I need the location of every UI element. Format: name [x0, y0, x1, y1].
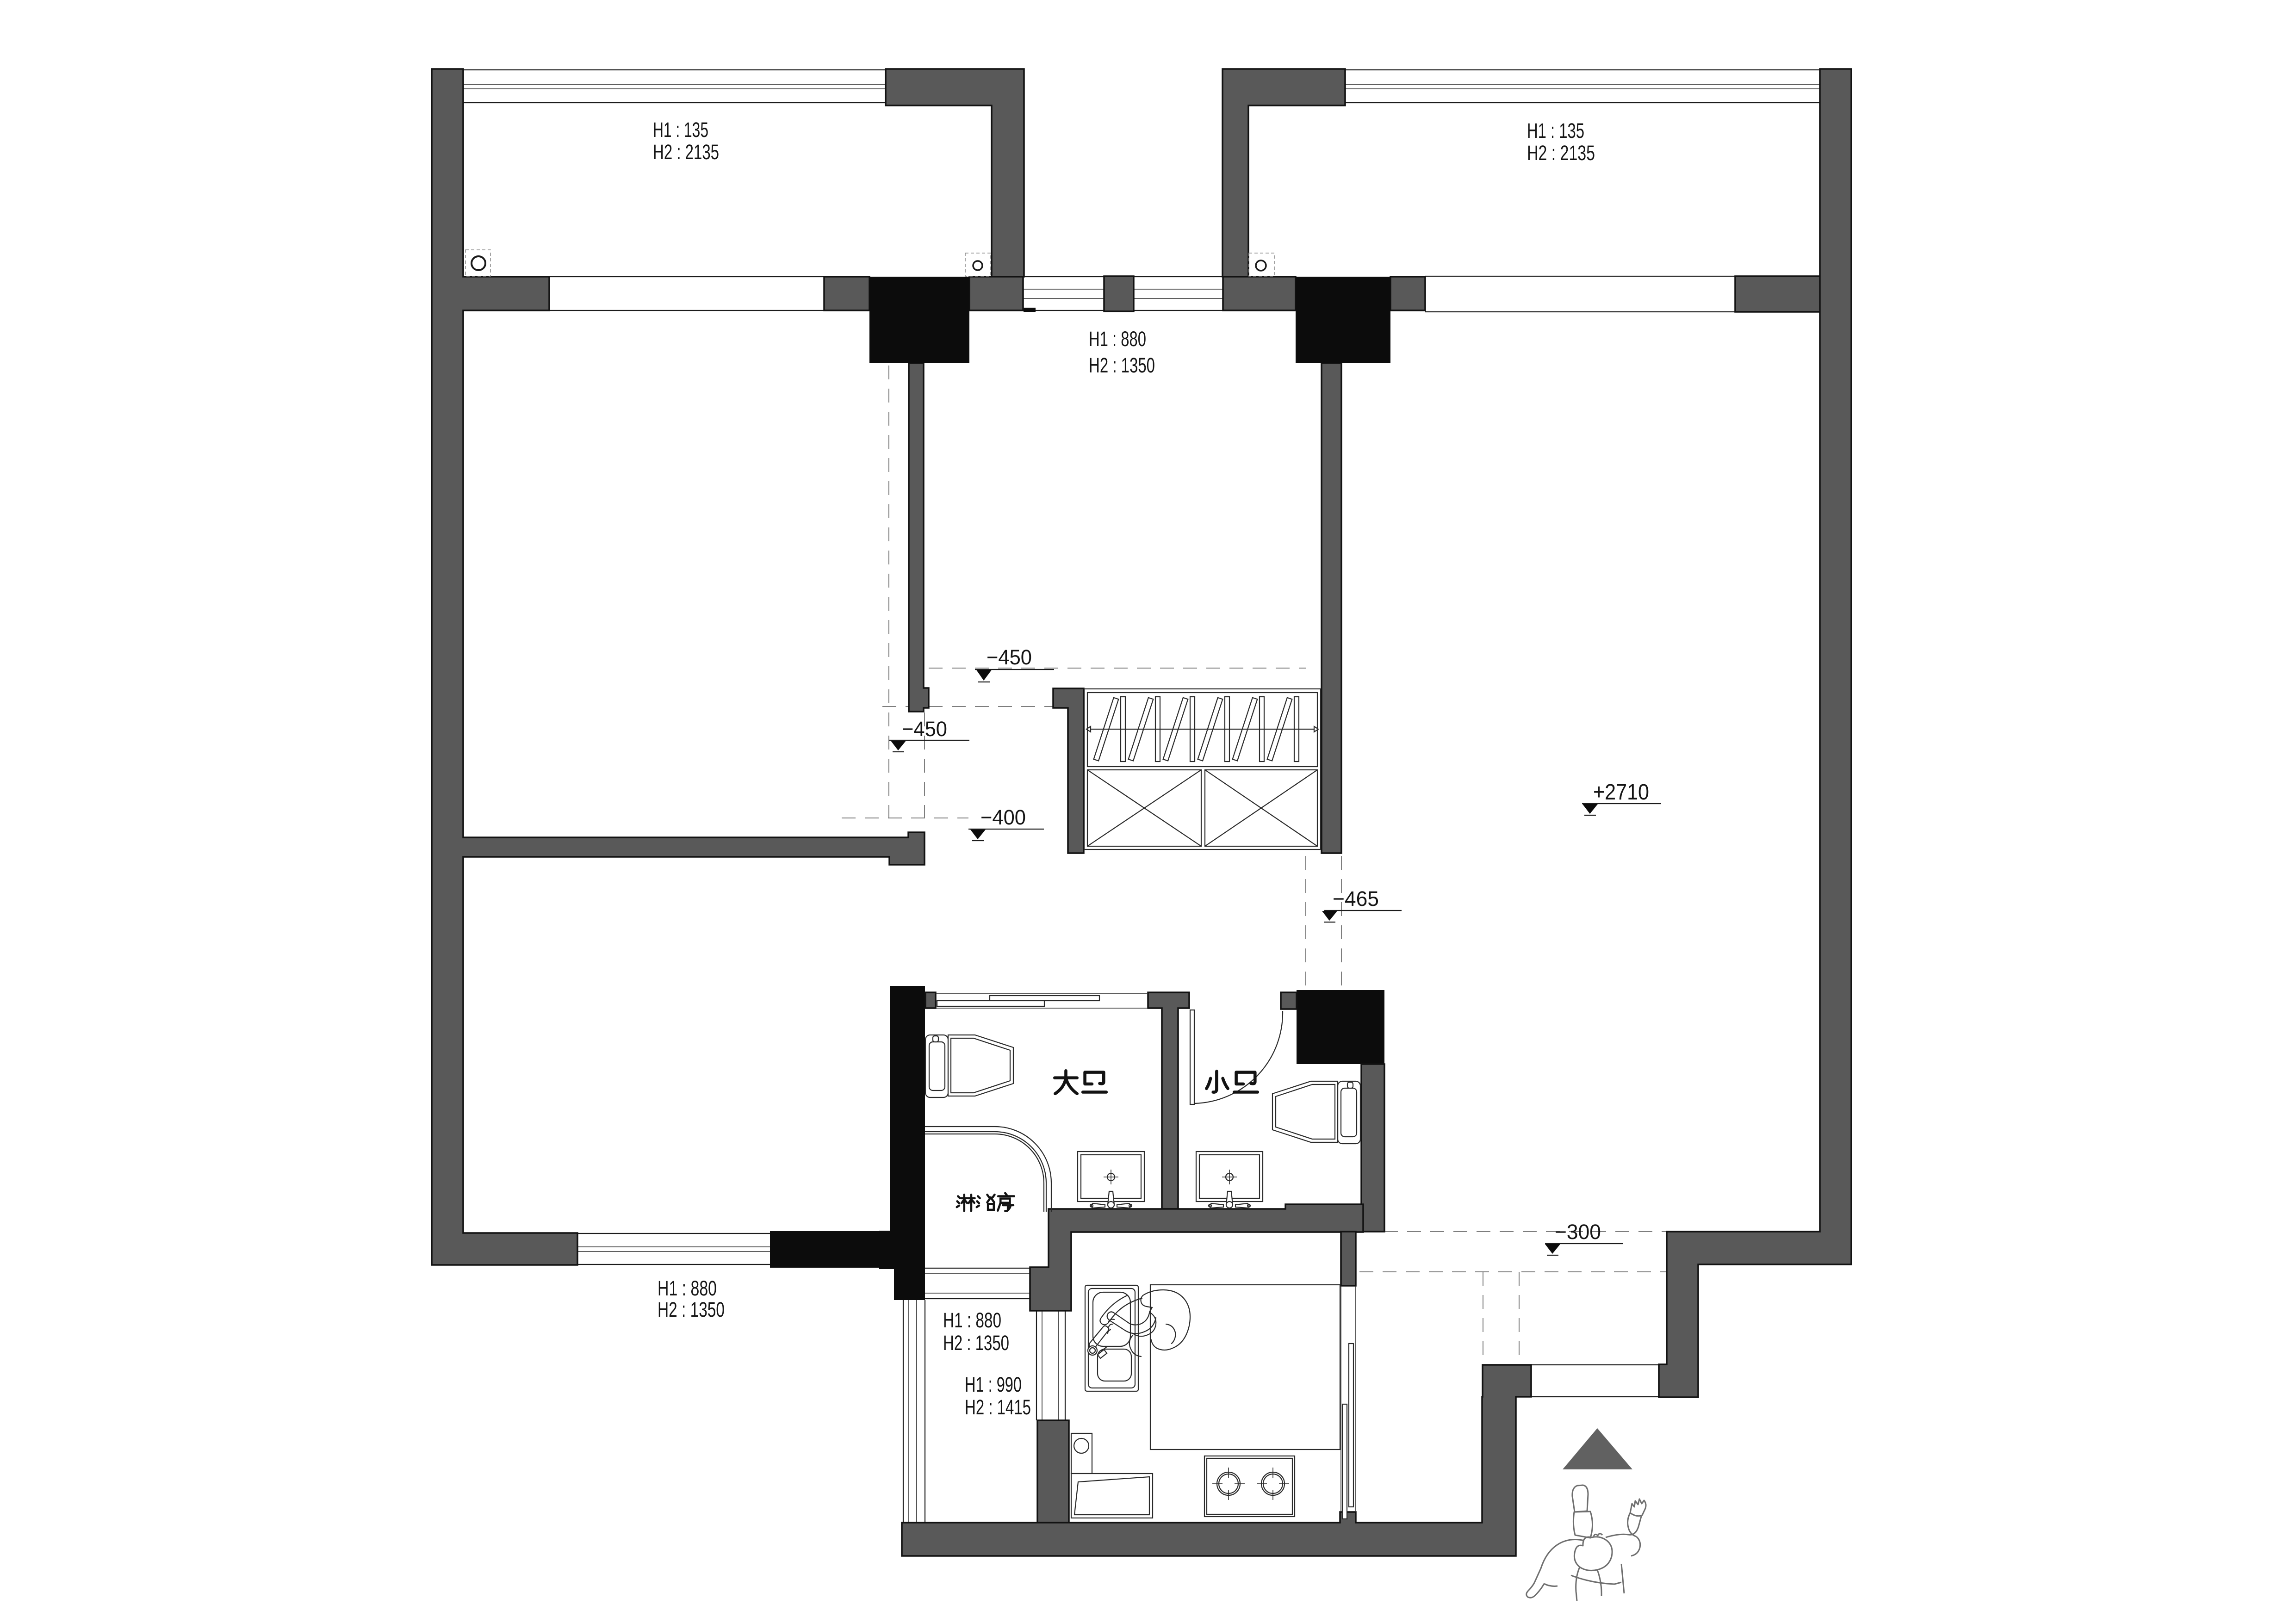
- svg-text:−450: −450: [987, 645, 1032, 669]
- svg-text:H2 : 1415: H2 : 1415: [965, 1395, 1031, 1419]
- svg-text:−450: −450: [902, 717, 947, 741]
- svg-text:H1 : 880: H1 : 880: [658, 1276, 717, 1300]
- svg-text:−400: −400: [980, 805, 1026, 829]
- svg-text:H2 : 2135: H2 : 2135: [653, 140, 719, 164]
- svg-text:H2 : 1350: H2 : 1350: [658, 1298, 725, 1321]
- svg-text:−300: −300: [1555, 1220, 1601, 1244]
- svg-text:H1 : 990: H1 : 990: [965, 1373, 1022, 1396]
- svg-text:H1 : 135: H1 : 135: [1527, 119, 1584, 142]
- svg-text:H2 : 1350: H2 : 1350: [943, 1331, 1009, 1355]
- svg-text:H1 : 135: H1 : 135: [653, 118, 708, 142]
- svg-text:H2 : 1350: H2 : 1350: [1089, 353, 1155, 377]
- svg-text:−465: −465: [1333, 887, 1379, 911]
- svg-text:H2 : 2135: H2 : 2135: [1527, 141, 1595, 165]
- svg-text:H1 : 880: H1 : 880: [943, 1308, 1001, 1332]
- svg-text:+2710: +2710: [1593, 780, 1649, 805]
- svg-text:H1 : 880: H1 : 880: [1089, 327, 1146, 351]
